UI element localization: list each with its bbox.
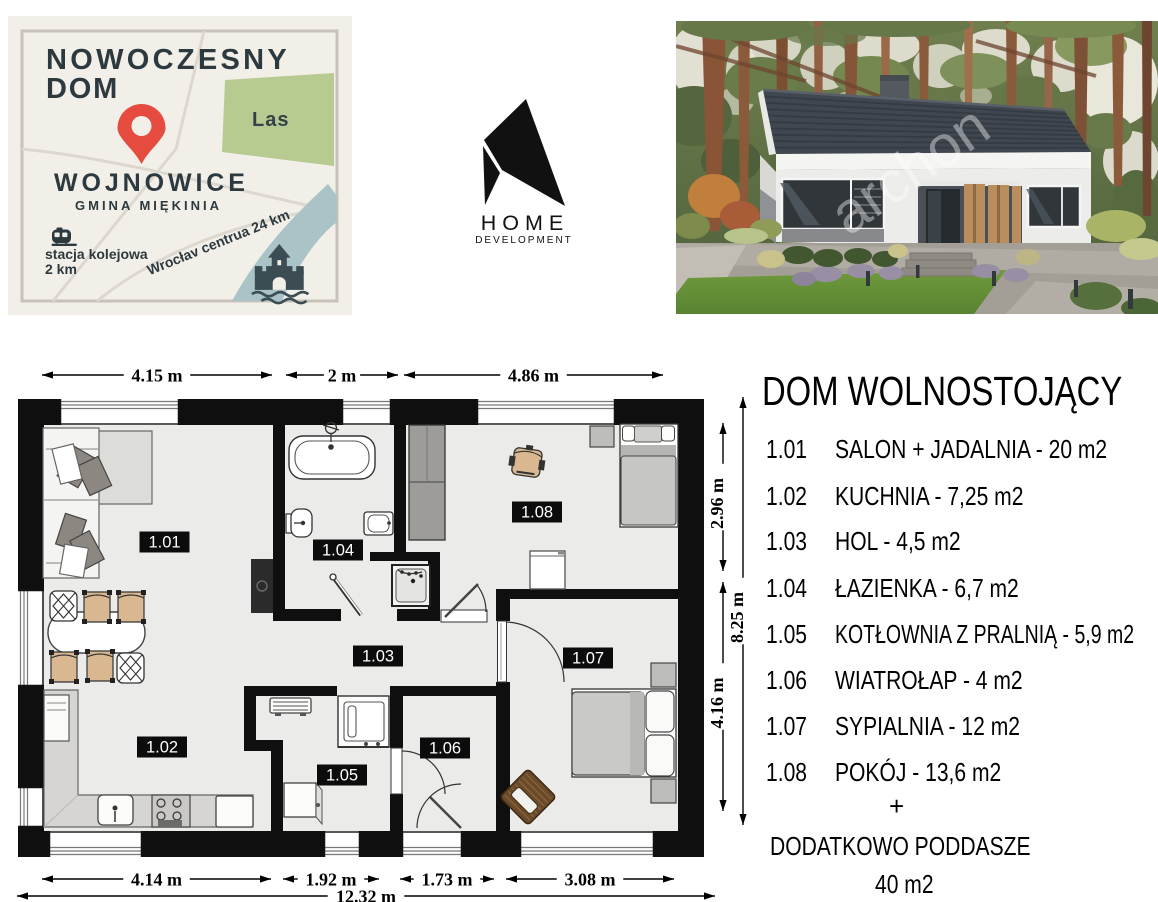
svg-text:12.32 m: 12.32 m	[336, 887, 396, 902]
svg-text:HOME: HOME	[481, 211, 570, 235]
svg-text:GMINA MIĘKINIA: GMINA MIĘKINIA	[75, 198, 222, 213]
svg-text:Las: Las	[252, 109, 289, 131]
svg-text:4.15 m: 4.15 m	[132, 366, 183, 386]
svg-text:1.02: 1.02	[146, 739, 178, 757]
svg-text:1.04: 1.04	[322, 542, 354, 560]
svg-text:DEVELOPMENT: DEVELOPMENT	[475, 235, 573, 246]
svg-text:WOJNOWICE: WOJNOWICE	[54, 169, 249, 197]
svg-text:NOWOCZESNY: NOWOCZESNY	[46, 44, 290, 76]
svg-text:stacja kolejowa: stacja kolejowa	[45, 246, 148, 262]
svg-text:3.08 m: 3.08 m	[565, 870, 616, 890]
svg-text:2 m: 2 m	[328, 366, 357, 386]
svg-text:1.73 m: 1.73 m	[422, 870, 473, 890]
svg-text:4.16 m: 4.16 m	[707, 678, 727, 729]
svg-text:8.25 m: 8.25 m	[727, 592, 747, 643]
svg-text:1.01: 1.01	[148, 534, 180, 552]
svg-text:DOM: DOM	[46, 73, 119, 105]
svg-text:2 km: 2 km	[45, 261, 77, 277]
svg-text:4.14 m: 4.14 m	[131, 870, 182, 890]
svg-text:2.96 m: 2.96 m	[707, 478, 727, 529]
svg-text:1.08: 1.08	[521, 504, 553, 522]
svg-text:1.06: 1.06	[429, 740, 461, 758]
svg-text:4.86 m: 4.86 m	[508, 366, 559, 386]
svg-text:1.03: 1.03	[362, 648, 394, 666]
svg-text:1.05: 1.05	[326, 767, 358, 785]
svg-text:1.07: 1.07	[572, 650, 604, 668]
